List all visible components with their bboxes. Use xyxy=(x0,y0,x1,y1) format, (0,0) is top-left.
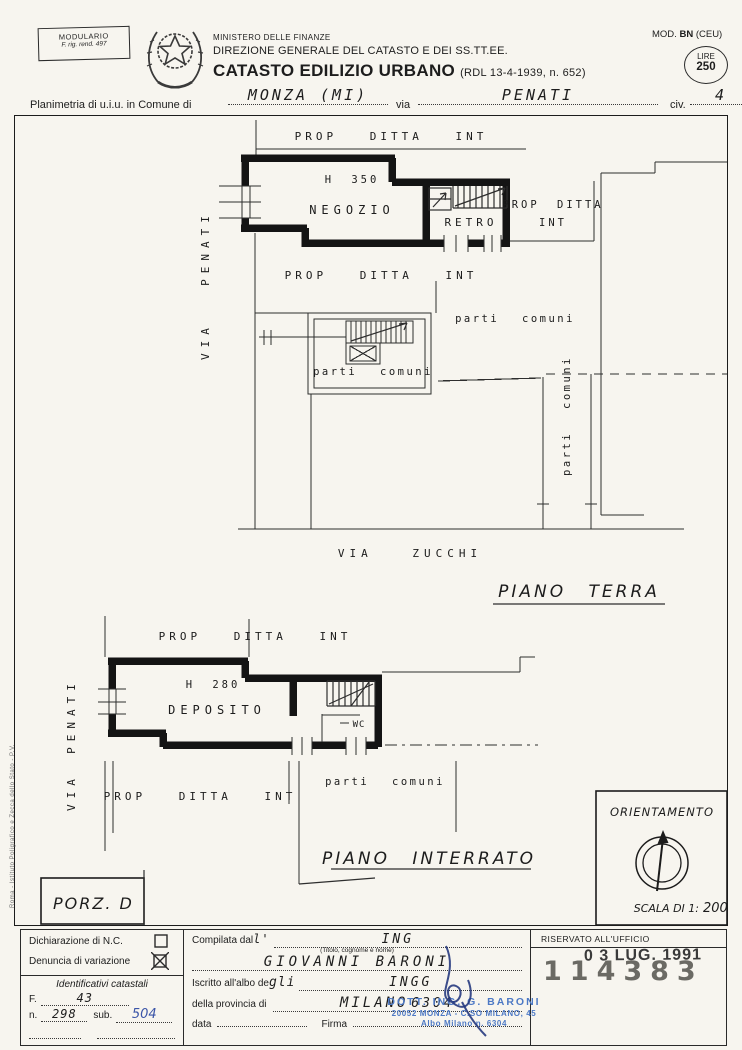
label-scala: SCALA DI 1: xyxy=(634,902,699,915)
scanned-cadastral-form: MODULARIO F. rig. rend. 497 MINISTERO DE… xyxy=(0,0,742,1050)
label-prop-ditta-below: PROP DITTA INT xyxy=(285,269,478,282)
document-title-ref: (RDL 13-4-1939, n. 652) xyxy=(460,67,586,79)
footer-form: Dichiarazione di N.C. Denuncia di variaz… xyxy=(20,929,727,1046)
via-label: via xyxy=(396,99,410,111)
comune-field: MONZA (MI) xyxy=(228,86,388,105)
civ-field: 4 xyxy=(690,86,742,105)
provincia-label: della provincia di xyxy=(192,999,267,1010)
sub-value: 504 xyxy=(132,1007,157,1022)
label-via-penati-street-2: PENATI xyxy=(199,210,212,286)
data-label: data xyxy=(192,1019,211,1030)
mod-label: MOD. BN (CEU) xyxy=(652,29,722,40)
numero-value: 298 xyxy=(52,1007,77,1021)
compilata-label: Compilata dal xyxy=(192,935,253,946)
ministry-label: MINISTERO DELLE FINANZE xyxy=(213,33,331,42)
checkbox-variation-checked-icon xyxy=(151,952,169,970)
foglio-value: 43 xyxy=(77,991,93,1005)
label-orientamento: ORIENTAMENTO xyxy=(610,805,714,819)
mod-bold: BN xyxy=(679,29,693,40)
value-scala: 200 xyxy=(703,901,727,916)
foglio-label: F. xyxy=(29,994,37,1005)
foglio-field: 43 xyxy=(41,991,129,1006)
lire-stamp: LIRE 250 xyxy=(684,46,728,84)
floor-plan-drawing: PROP DITTA INT H 350 NEGOZIO RETRO PROP … xyxy=(15,116,727,925)
label-retro: RETRO xyxy=(444,216,497,229)
iscritto-hw: gli xyxy=(269,975,295,990)
declaration-nc-label: Dichiarazione di N.C. xyxy=(29,936,123,947)
empty-field-1 xyxy=(29,1030,81,1039)
identificativi-label: Identificativi catastali xyxy=(21,979,183,990)
signature-icon xyxy=(424,942,496,1044)
compilata-apostrophe: l' xyxy=(253,932,269,946)
iscritto-label: Iscritto all'albo de xyxy=(192,978,269,989)
label-parti-comuni-main: parti comuni xyxy=(455,313,575,325)
mod-suffix: (CEU) xyxy=(696,29,722,40)
printer-note: Roma - Istituto Poligrafico e Zecca dell… xyxy=(10,744,16,908)
planimetria-row: Planimetria di u.i.u. in Comune di MONZA… xyxy=(30,92,730,112)
compass-icon xyxy=(636,830,688,891)
label-via-penati-street-1: VIA xyxy=(199,322,212,360)
label-via-penati-int-1: VIA xyxy=(65,773,78,811)
sub-label: sub. xyxy=(93,1010,112,1021)
label-h280: H 280 xyxy=(186,679,241,691)
via-field: PENATI xyxy=(418,86,658,105)
data-field xyxy=(217,1017,307,1027)
nome-value: GIOVANNI BARONI xyxy=(264,954,450,970)
label-prop-ditta-top: PROP DITTA INT xyxy=(295,130,488,143)
document-title-row: CATASTO EDILIZIO URBANO (RDL 13-4-1939, … xyxy=(213,61,586,81)
label-prop-ditta-right-1: PROP DITTA xyxy=(502,199,603,211)
compilata-value: ING xyxy=(382,932,414,947)
comune-value: MONZA (MI) xyxy=(248,86,368,104)
label-negozio: NEGOZIO xyxy=(309,203,395,217)
plan-frame: PROP DITTA INT H 350 NEGOZIO RETRO PROP … xyxy=(14,115,728,926)
serial-stamp: 114383 xyxy=(543,956,726,987)
riservato-label: RISERVATO ALL'UFFICIO xyxy=(531,930,726,948)
lire-value: 250 xyxy=(685,61,727,73)
numero-field: 298 xyxy=(41,1007,87,1022)
label-parti-comuni-int: parti comuni xyxy=(325,776,445,788)
modulario-box: MODULARIO F. rig. rend. 497 xyxy=(38,26,131,61)
compiler-cell: Compilata dall' ING (Titolo, cognome e n… xyxy=(184,930,531,1045)
label-prop-ditta-right-2: INT xyxy=(539,217,567,229)
declaration-cell: Dichiarazione di N.C. Denuncia di variaz… xyxy=(21,930,184,1045)
checkbox-nc-icon xyxy=(153,933,169,949)
office-cell: RISERVATO ALL'UFFICIO 114383 xyxy=(531,930,726,1045)
numero-label: n. xyxy=(29,1010,37,1021)
label-via-zucchi: VIA ZUCCHI xyxy=(338,547,482,560)
civ-label: civ. xyxy=(670,99,686,111)
direction-label: DIREZIONE GENERALE DEL CATASTO E DEI SS.… xyxy=(213,45,508,57)
lire-label: LIRE xyxy=(685,52,727,61)
title-piano-interrato: PIANO INTERRATO xyxy=(322,849,536,869)
italy-emblem-icon xyxy=(144,20,206,94)
label-parti-comuni-corridor: parti comuni xyxy=(561,356,573,476)
empty-field-2 xyxy=(97,1030,175,1039)
label-h350: H 350 xyxy=(325,174,380,186)
label-parti-comuni-stair: parti comuni xyxy=(313,366,433,378)
label-deposito: DEPOSITO xyxy=(168,703,266,717)
modulario-line2: F. rig. rend. 497 xyxy=(39,40,129,49)
planimetria-label: Planimetria di u.i.u. in Comune di xyxy=(30,99,191,111)
mod-prefix: MOD. xyxy=(652,29,677,40)
via-value: PENATI xyxy=(502,86,574,104)
label-via-penati-int-2: PENATI xyxy=(65,678,78,754)
firma-label: Firma xyxy=(321,1019,347,1030)
label-prop-ditta-below-int: PROP DITTA INT xyxy=(104,790,297,803)
label-prop-ditta-top-int: PROP DITTA INT xyxy=(159,630,352,643)
label-wc: WC xyxy=(353,720,366,730)
document-title: CATASTO EDILIZIO URBANO xyxy=(213,61,455,80)
sub-field: 504 xyxy=(116,1007,172,1023)
civ-value: 4 xyxy=(715,86,727,104)
title-piano-terra: PIANO TERRA xyxy=(498,582,660,602)
variation-label: Denuncia di variazione xyxy=(29,956,130,967)
label-porzione: PORZ. D xyxy=(53,894,134,913)
